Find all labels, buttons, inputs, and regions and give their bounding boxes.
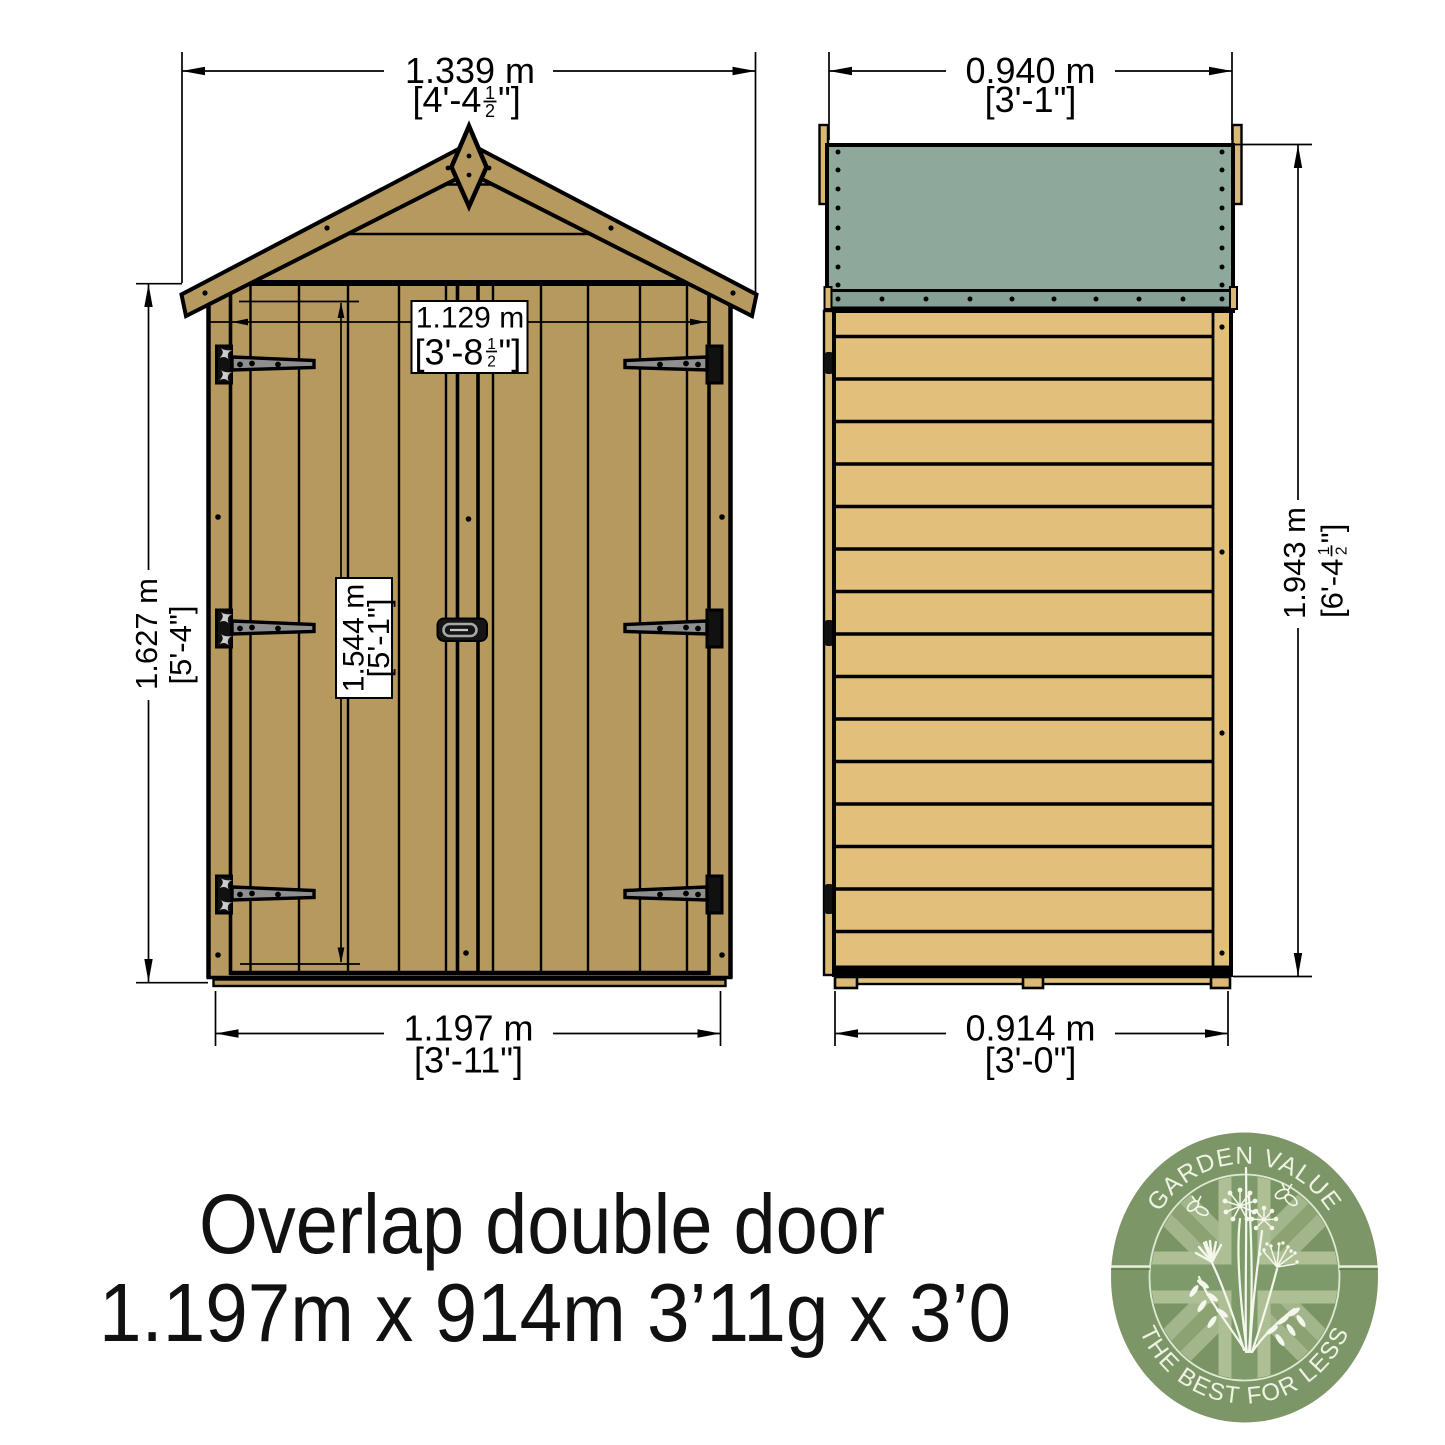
svg-text:Overlap double door: Overlap double door bbox=[199, 1177, 885, 1271]
svg-text:[3'-0"]: [3'-0"] bbox=[985, 1040, 1077, 1081]
svg-text:[6'-4: [6'-4 bbox=[1315, 559, 1350, 618]
svg-text:2: 2 bbox=[485, 101, 495, 121]
svg-text:1.943 m: 1.943 m bbox=[1277, 507, 1312, 619]
svg-text:1: 1 bbox=[487, 336, 496, 353]
svg-text:[4'-4: [4'-4 bbox=[413, 79, 482, 120]
svg-text:1: 1 bbox=[1316, 546, 1333, 555]
svg-text:[3'-11"]: [3'-11"] bbox=[414, 1040, 523, 1081]
svg-text:1.129 m: 1.129 m bbox=[416, 302, 524, 335]
svg-text:"]: "] bbox=[498, 79, 521, 120]
svg-text:"]: "] bbox=[499, 332, 522, 373]
svg-text:"]: "] bbox=[1315, 524, 1350, 544]
svg-text:2: 2 bbox=[487, 354, 496, 371]
svg-text:1.627 m: 1.627 m bbox=[129, 578, 164, 690]
svg-text:[3'-8: [3'-8 bbox=[415, 332, 484, 373]
svg-text:2: 2 bbox=[1334, 546, 1351, 555]
svg-text:[5'-1"]: [5'-1"] bbox=[361, 599, 396, 678]
svg-text:1.197m x 914m 3’11g x 3’0: 1.197m x 914m 3’11g x 3’0 bbox=[99, 1266, 1011, 1359]
svg-text:[5'-4"]: [5'-4"] bbox=[163, 606, 198, 685]
svg-text:1: 1 bbox=[485, 83, 495, 103]
svg-text:[3'-1"]: [3'-1"] bbox=[985, 79, 1077, 120]
